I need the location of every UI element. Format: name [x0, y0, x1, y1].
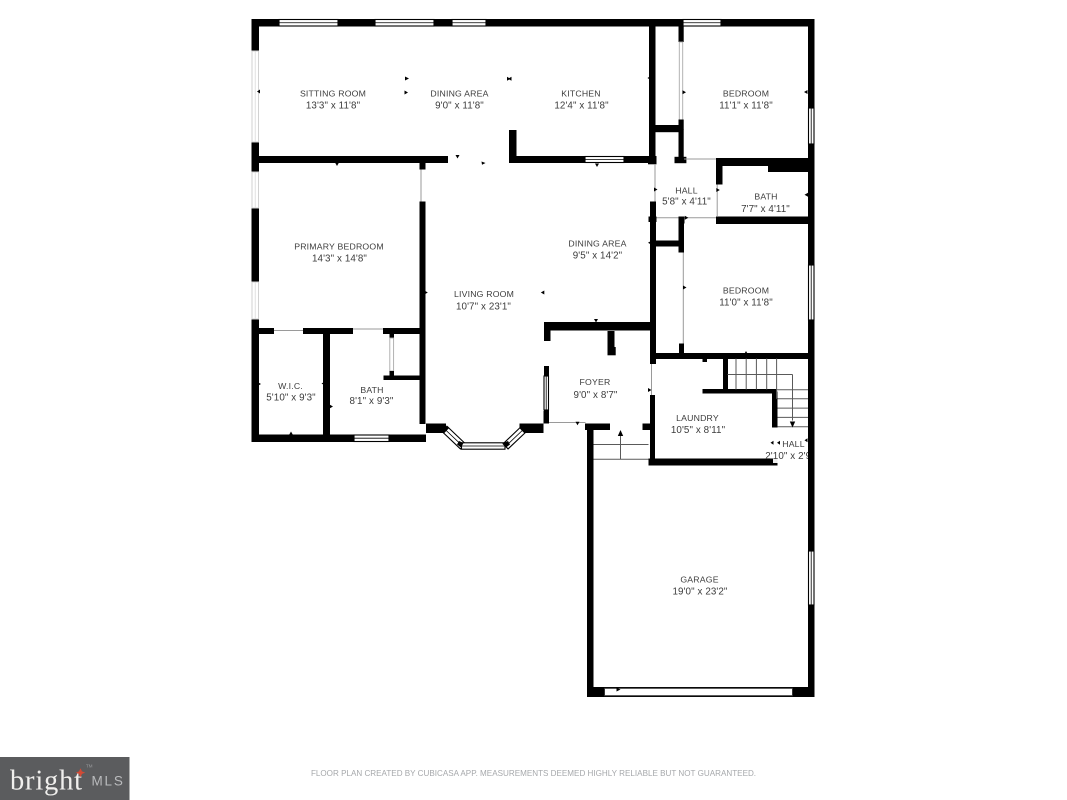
svg-text:DINING AREA: DINING AREA: [430, 89, 488, 99]
svg-text:11'0" x 11'8": 11'0" x 11'8": [719, 297, 773, 308]
svg-text:2'10" x 2'9": 2'10" x 2'9": [765, 451, 815, 462]
svg-text:SITTING ROOM: SITTING ROOM: [300, 89, 366, 99]
svg-text:5'8" x 4'11": 5'8" x 4'11": [662, 197, 711, 208]
svg-text:PRIMARY BEDROOM: PRIMARY BEDROOM: [294, 242, 384, 252]
svg-text:14'3" x 14'8": 14'3" x 14'8": [312, 254, 367, 265]
svg-text:HALL: HALL: [782, 439, 805, 449]
svg-text:BATH: BATH: [360, 385, 383, 395]
svg-text:7'7" x 4'11": 7'7" x 4'11": [741, 204, 790, 215]
svg-text:LAUNDRY: LAUNDRY: [676, 413, 719, 423]
svg-text:9'5" x 14'2": 9'5" x 14'2": [573, 250, 623, 261]
svg-text:5'10" x 9'3": 5'10" x 9'3": [266, 392, 316, 403]
svg-text:DINING AREA: DINING AREA: [568, 239, 626, 249]
svg-text:9'0" x 11'8": 9'0" x 11'8": [435, 100, 484, 111]
svg-text:KITCHEN: KITCHEN: [561, 89, 601, 99]
svg-text:FOYER: FOYER: [580, 377, 611, 387]
svg-text:8'1" x 9'3": 8'1" x 9'3": [350, 396, 394, 407]
svg-text:13'3" x 11'8": 13'3" x 11'8": [306, 100, 361, 111]
svg-text:9'0" x 8'7": 9'0" x 8'7": [574, 390, 618, 401]
svg-text:TM: TM: [86, 764, 93, 769]
svg-text:12'4" x 11'8": 12'4" x 11'8": [554, 100, 609, 111]
svg-text:HALL: HALL: [675, 186, 698, 196]
svg-text:GARAGE: GARAGE: [680, 575, 718, 585]
svg-text:10'5" x 8'11": 10'5" x 8'11": [671, 425, 726, 436]
svg-text:LIVING ROOM: LIVING ROOM: [454, 289, 514, 299]
svg-text:10'7" x 23'1": 10'7" x 23'1": [456, 302, 511, 313]
svg-text:BATH: BATH: [754, 191, 777, 201]
svg-text:bright: bright: [10, 766, 83, 797]
svg-text:19'0" x 23'2": 19'0" x 23'2": [672, 587, 727, 598]
svg-text:MLS: MLS: [92, 774, 125, 789]
svg-text:11'1" x 11'8": 11'1" x 11'8": [719, 100, 773, 111]
svg-text:FLOOR PLAN CREATED BY CUBICASA: FLOOR PLAN CREATED BY CUBICASA APP. MEAS…: [311, 769, 756, 778]
svg-text:BEDROOM: BEDROOM: [723, 286, 769, 296]
svg-text:W.I.C.: W.I.C.: [278, 381, 303, 391]
svg-text:BEDROOM: BEDROOM: [723, 89, 769, 99]
